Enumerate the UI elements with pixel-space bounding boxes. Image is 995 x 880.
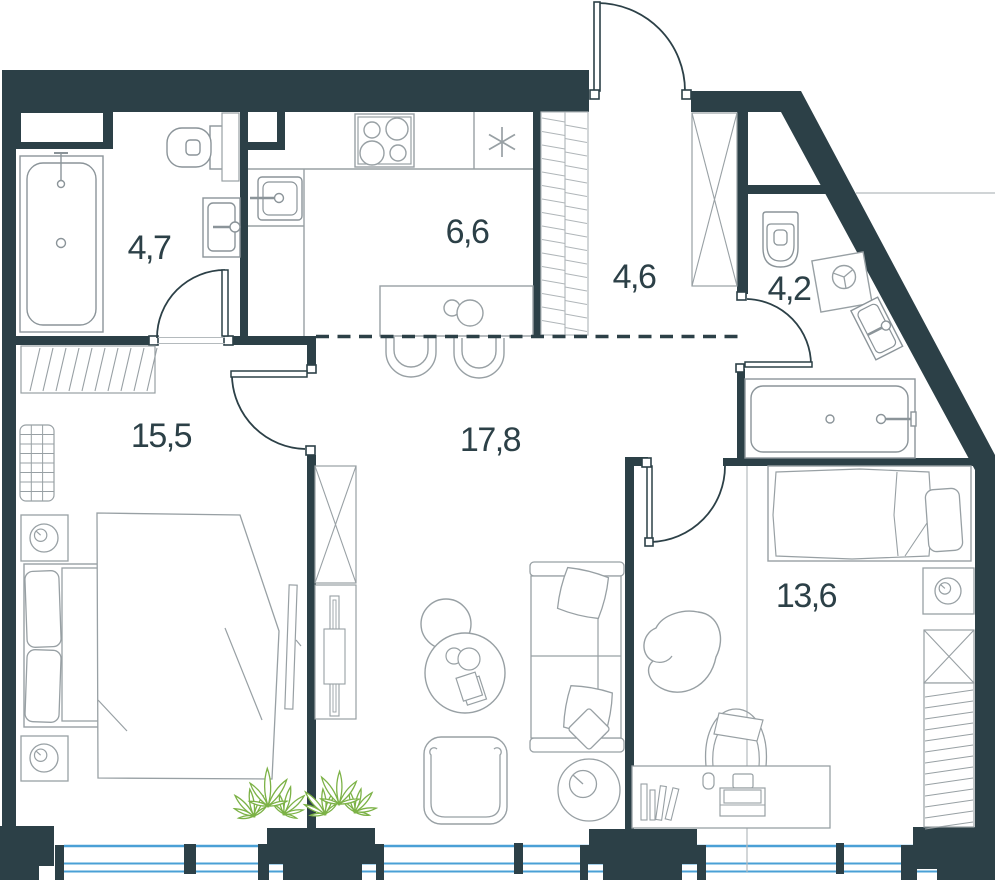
svg-text:17,8: 17,8 [460,421,521,459]
svg-text:15,5: 15,5 [131,417,192,455]
svg-text:13,6: 13,6 [776,577,837,615]
svg-text:6,6: 6,6 [446,213,489,251]
svg-text:4,7: 4,7 [128,229,171,267]
svg-text:4,2: 4,2 [768,270,811,308]
svg-text:4,6: 4,6 [613,258,656,296]
